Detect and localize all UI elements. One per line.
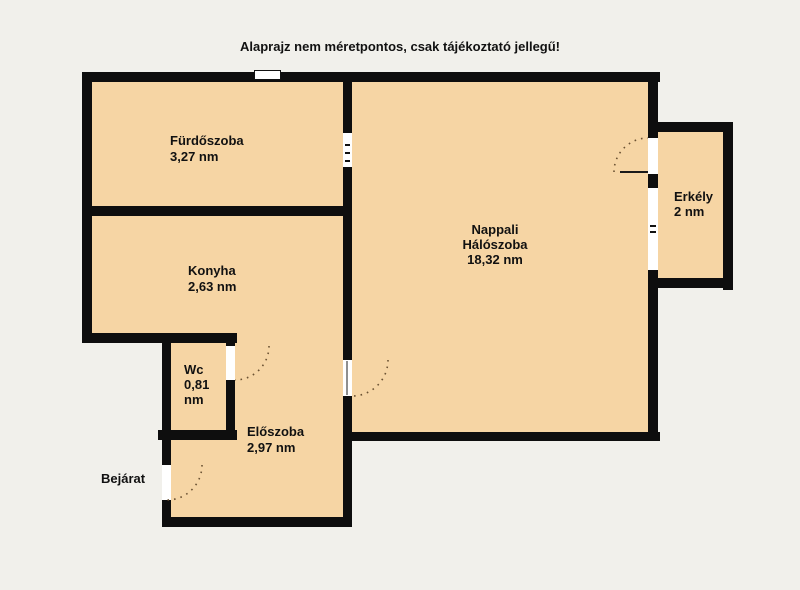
room-area: 3,27 nm [170, 149, 244, 165]
window-tick [345, 160, 350, 162]
room-label-furdoszoba: Fürdőszoba 3,27 nm [170, 133, 244, 165]
door-opening-balcony [648, 138, 658, 174]
room-label-eloszoba: Előszoba 2,97 nm [247, 424, 304, 456]
room-name: Fürdőszoba [170, 133, 244, 149]
room-area: 2,63 nm [188, 279, 236, 295]
wall-hall-bottom [162, 517, 352, 527]
wall-wc-bottom [158, 430, 237, 440]
room-name: Hálószoba [440, 237, 550, 252]
wall-living-bottom [343, 432, 660, 441]
room-area: 2 nm [674, 204, 713, 219]
wall-top [82, 72, 660, 82]
room-name: Nappali [440, 222, 550, 237]
disclaimer-text: Alaprajz nem méretpontos, csak tájékozta… [0, 39, 800, 54]
room-label-erkely: Erkély 2 nm [674, 189, 713, 219]
room-area: 2,97 nm [247, 440, 304, 456]
room-label-konyha: Konyha 2,63 nm [188, 263, 236, 295]
window-tick [345, 144, 350, 146]
wall-bathroom-kitchen-divider [82, 206, 352, 216]
window-bathroom-top [254, 70, 281, 80]
room-name: Előszoba [247, 424, 304, 440]
entrance-label: Bejárat [101, 471, 145, 487]
room-name: Wc [184, 362, 230, 377]
window-tick [650, 225, 656, 227]
room-name: Konyha [188, 263, 236, 279]
window-tick [345, 152, 350, 154]
door-leaf-balcony [620, 171, 648, 173]
room-label-nappali: Nappali Hálószoba 18,32 nm [440, 222, 550, 267]
floorplan-canvas: Alaprajz nem méretpontos, csak tájékozta… [0, 0, 800, 590]
room-area: 0,81 nm [184, 377, 230, 407]
door-leaf-living [346, 361, 348, 395]
window-tick [650, 231, 656, 233]
wall-balcony-top [655, 122, 733, 132]
wall-kitchen-bottom [82, 333, 237, 343]
door-opening-entrance [162, 465, 171, 500]
wall-balcony-right [723, 122, 733, 290]
room-name: Erkély [674, 189, 713, 204]
wall-balcony-bottom [655, 278, 733, 288]
room-area: 18,32 nm [440, 252, 550, 267]
room-label-wc: Wc 0,81 nm [184, 362, 230, 407]
window-living-right [648, 188, 658, 270]
